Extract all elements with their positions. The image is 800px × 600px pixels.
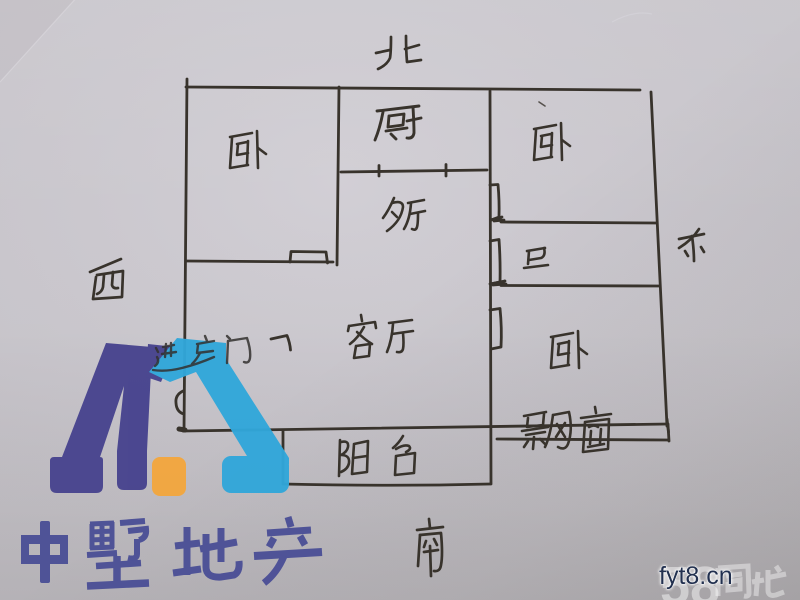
svg-text:fyt8.cn: fyt8.cn: [659, 562, 733, 590]
